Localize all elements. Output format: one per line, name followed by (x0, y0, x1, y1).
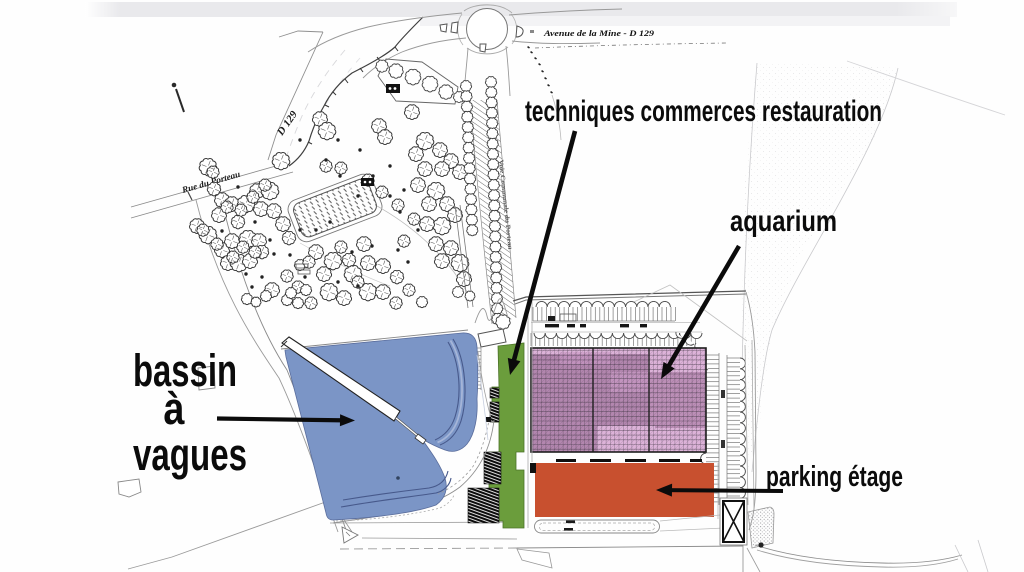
svg-text:parking étage: parking étage (766, 461, 903, 493)
svg-text:à: à (164, 383, 186, 434)
svg-text:Avenue de la Mine - D 129: Avenue de la Mine - D 129 (543, 28, 655, 38)
svg-text:aquarium: aquarium (730, 205, 837, 238)
svg-text:vagues: vagues (133, 429, 247, 480)
svg-text:bassin: bassin (133, 345, 237, 396)
svg-text:techniques commerces restaurat: techniques commerces restauration (525, 95, 882, 128)
